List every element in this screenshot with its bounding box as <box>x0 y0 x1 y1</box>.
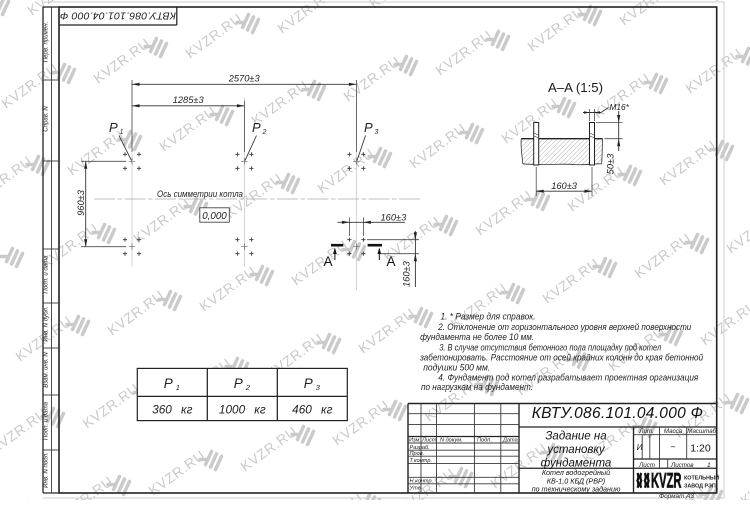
svg-text:460 кг: 460 кг <box>292 402 332 416</box>
svg-text:1: 1 <box>707 462 711 469</box>
svg-text:2: 2 <box>245 383 251 392</box>
svg-text:Ось симметрии котла: Ось симметрии котла <box>157 189 243 199</box>
svg-text:Листов: Листов <box>670 462 694 469</box>
svg-text:Пров.: Пров. <box>410 451 425 457</box>
svg-text:Подп.: Подп. <box>477 438 492 444</box>
svg-text:фундамента не более 10 мм.: фундамента не более 10 мм. <box>420 332 534 342</box>
svg-text:2. Отклонение от горизонтально: 2. Отклонение от горизонтального уровня … <box>437 322 691 332</box>
svg-text:Изм.: Изм. <box>409 438 421 444</box>
svg-text:1: 1 <box>176 383 180 392</box>
svg-text:КОТЕЛЬНЫЙ: КОТЕЛЬНЫЙ <box>684 473 719 481</box>
svg-text:И: И <box>637 443 643 452</box>
svg-text:P: P <box>109 120 118 135</box>
svg-text:P: P <box>252 120 261 135</box>
svg-text:160±3: 160±3 <box>551 181 578 191</box>
svg-text:по техническому заданию: по техническому заданию <box>532 485 621 494</box>
svg-text:1: 1 <box>120 129 124 136</box>
svg-text:P: P <box>364 120 373 135</box>
svg-text:360 кг: 360 кг <box>152 402 192 416</box>
svg-text:КВТУ.086.101.04.000 Ф: КВТУ.086.101.04.000 Ф <box>532 405 704 422</box>
svg-text:3: 3 <box>375 129 379 136</box>
svg-text:2: 2 <box>262 129 267 136</box>
svg-text:A–A (1:5): A–A (1:5) <box>548 80 603 95</box>
svg-text:–: – <box>670 442 676 451</box>
svg-text:Лит.: Лит. <box>638 428 654 435</box>
svg-text:по нагрузкам на фундамент.: по нагрузкам на фундамент. <box>421 382 533 392</box>
svg-text:Т.контр.: Т.контр. <box>410 458 433 464</box>
svg-text:1:20: 1:20 <box>690 443 711 455</box>
svg-text:1285±3: 1285±3 <box>173 95 205 105</box>
svg-text:Взам. инв. N: Взам. инв. N <box>42 352 49 388</box>
svg-text:Масштаб: Масштаб <box>687 428 716 435</box>
svg-text:Подп. и дата: Подп. и дата <box>42 255 49 294</box>
svg-text:Дата: Дата <box>502 438 518 444</box>
svg-text:забетонировать. Расстояние от: забетонировать. Расстояние от осей крайн… <box>419 352 703 362</box>
svg-text:A: A <box>386 254 395 269</box>
svg-text:50±3: 50±3 <box>606 153 616 174</box>
svg-text:P: P <box>304 376 313 391</box>
svg-text:4. Фундамент под котел разраба: 4. Фундамент под котел разрабатывает про… <box>438 372 698 382</box>
svg-text:Лист: Лист <box>638 462 655 469</box>
svg-text:1. * Размер для справок.: 1. * Размер для справок. <box>441 312 536 322</box>
svg-text:Котел водогрейный: Котел водогрейный <box>542 468 610 477</box>
svg-text:ЗАВОД РЭП: ЗАВОД РЭП <box>684 483 716 489</box>
svg-text:960±3: 960±3 <box>76 189 86 216</box>
svg-text:Масса: Масса <box>664 428 683 435</box>
svg-text:1000 кг: 1000 кг <box>219 402 266 416</box>
svg-text:КВТУ.086.101.04.000 Ф: КВТУ.086.101.04.000 Ф <box>60 10 176 22</box>
svg-text:Справ. N: Справ. N <box>42 106 49 132</box>
svg-text:P: P <box>164 376 173 391</box>
svg-text:3. В случае отсутствия бетонно: 3. В случае отсутствия бетонного пола пл… <box>439 343 661 353</box>
svg-text:160±3: 160±3 <box>402 260 412 287</box>
svg-text:установку: установку <box>546 444 606 456</box>
svg-text:Формат А3: Формат А3 <box>659 493 694 500</box>
svg-text:Инв. N подл.: Инв. N подл. <box>42 452 49 488</box>
svg-text:Инв. N дубл.: Инв. N дубл. <box>42 306 49 341</box>
svg-text:2570±3: 2570±3 <box>228 74 261 84</box>
svg-text:0,000: 0,000 <box>202 211 227 222</box>
svg-text:160±3: 160±3 <box>381 212 408 222</box>
svg-text:Задание на: Задание на <box>545 431 606 443</box>
svg-text:Утв.: Утв. <box>409 486 423 492</box>
svg-text:M16*: M16* <box>610 102 630 112</box>
svg-text:KVZR: KVZR <box>651 470 682 493</box>
svg-text:Перв. примен.: Перв. примен. <box>42 22 49 63</box>
svg-text:A: A <box>323 254 332 269</box>
svg-text:N докум.: N докум. <box>440 438 463 444</box>
svg-text:Н.контр.: Н.контр. <box>410 479 434 485</box>
svg-text:Разраб.: Разраб. <box>410 445 430 451</box>
svg-text:P: P <box>234 376 243 391</box>
svg-text:Подп. и дата: Подп. и дата <box>42 401 49 440</box>
svg-text:подушки 500 мм.: подушки 500 мм. <box>423 363 490 373</box>
svg-text:Лист: Лист <box>421 438 437 444</box>
